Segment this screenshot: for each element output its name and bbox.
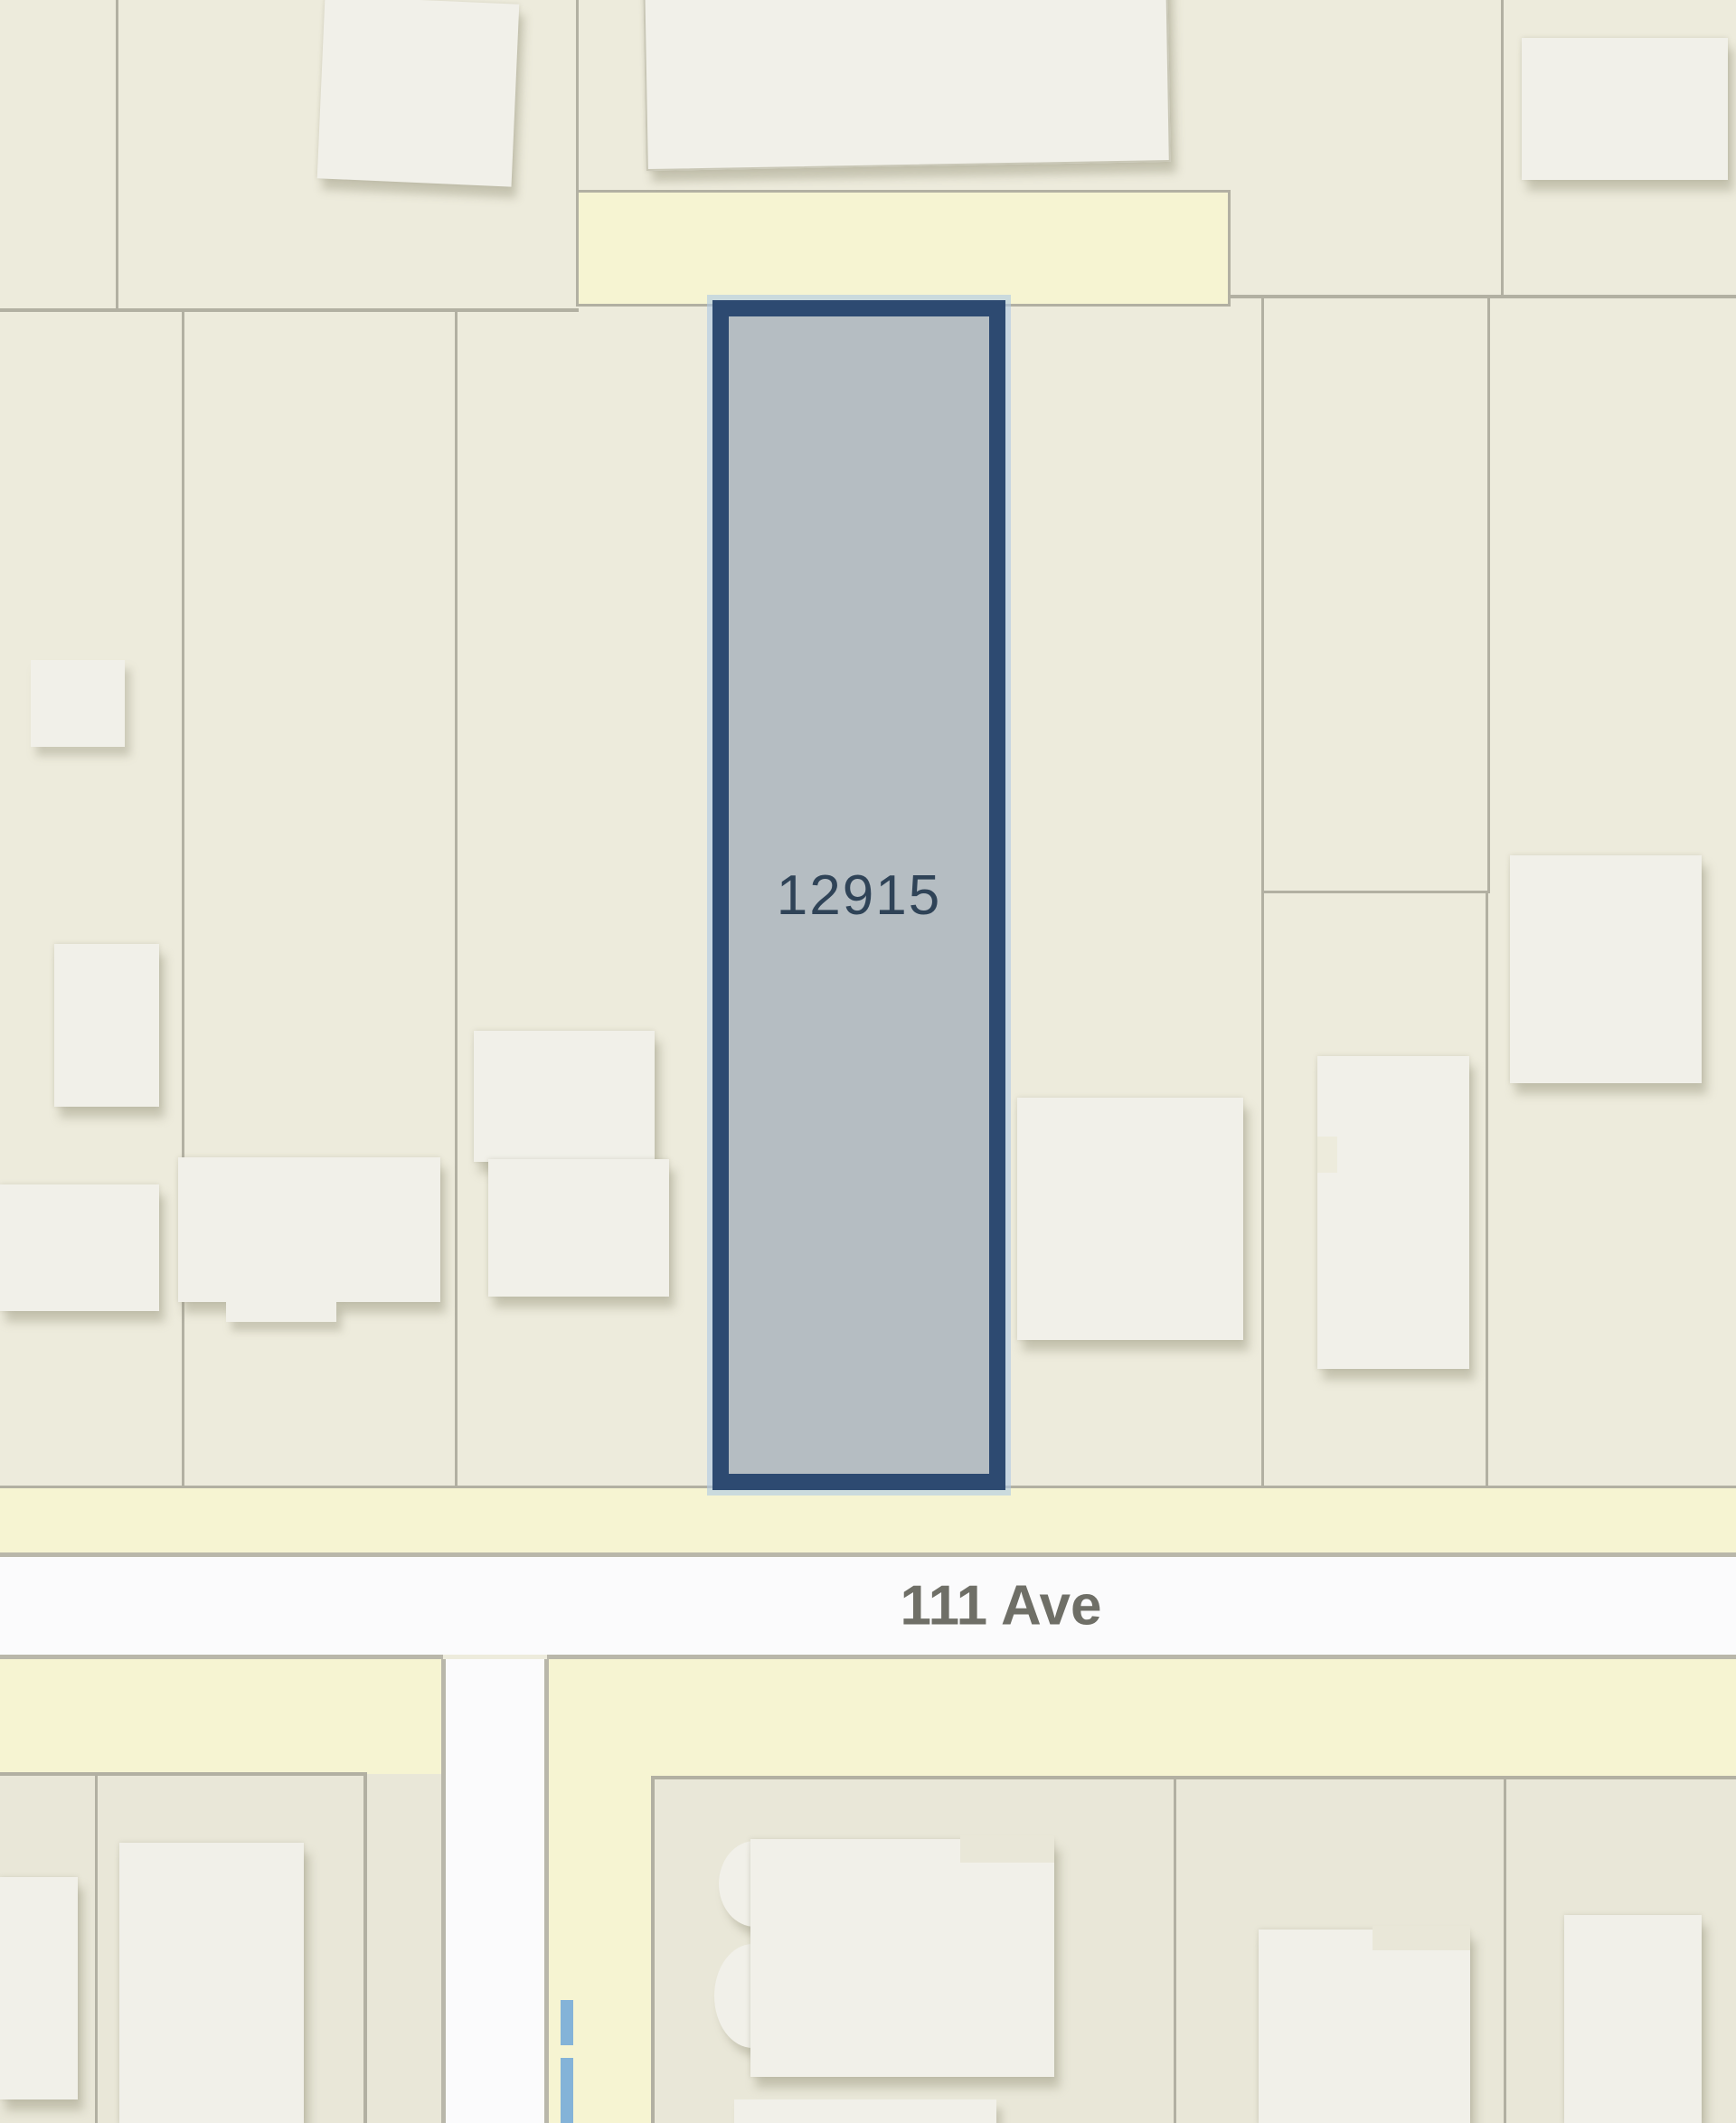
building-footprint <box>226 1300 336 1322</box>
side-road-pavement <box>446 1659 544 2123</box>
building-notch <box>960 1835 1054 1863</box>
building-footprint <box>474 1031 655 1162</box>
road-edge-line <box>0 1552 1736 1557</box>
road-111ave-pavement <box>0 1557 1736 1655</box>
road-allowance-band <box>549 1659 653 2123</box>
building-footprint <box>1017 1098 1243 1340</box>
building-footprint <box>643 0 1171 171</box>
road-edge-line <box>544 1659 549 2123</box>
map-canvas[interactable]: 12915 111 Ave <box>0 0 1736 2123</box>
building-footprint <box>0 1877 78 2099</box>
building-notch <box>1317 1137 1337 1173</box>
parcel-boundary-line <box>576 0 579 206</box>
block-edge-line <box>363 1772 367 2123</box>
road-allowance-band <box>653 1659 1736 1778</box>
parcel-boundary-line <box>1261 891 1490 893</box>
parcel-boundary-line <box>1487 297 1490 893</box>
parcel-boundary-line <box>1501 0 1504 297</box>
parcel-boundary-line <box>182 311 184 1488</box>
building-footprint <box>750 1839 1054 2077</box>
building-footprint <box>0 1184 159 1311</box>
block-top-boundary-line <box>0 1772 367 1776</box>
parcel-boundary-line <box>95 1774 98 2123</box>
road-allowance-band <box>0 1659 441 1774</box>
parcel-boundary-line <box>116 0 118 311</box>
road-edge-line <box>547 1655 1736 1659</box>
building-footprint <box>1317 1056 1469 1369</box>
parcel-boundary-line <box>1486 893 1488 1488</box>
rear-lane <box>576 190 1231 307</box>
road-edge-line <box>0 1655 443 1659</box>
building-footprint <box>119 1843 304 2123</box>
street-label: 111 Ave <box>901 1574 1102 1638</box>
building-footprint <box>54 944 159 1107</box>
block-edge-line <box>651 1776 655 2123</box>
building-footprint <box>178 1157 440 1302</box>
water-service-line <box>561 2000 573 2045</box>
road-edge-line <box>441 1659 446 2123</box>
parcel-boundary-line <box>1504 1778 1506 2123</box>
building-notch <box>1373 1926 1470 1950</box>
water-service-line <box>561 2058 573 2123</box>
road-allowance-band <box>0 1488 1736 1552</box>
building-footprint <box>1259 1930 1470 2123</box>
building-footprint <box>488 1159 669 1297</box>
parcel-label: 12915 <box>777 863 941 928</box>
parcel-boundary-line <box>455 311 458 1488</box>
building-footprint <box>1564 1915 1702 2123</box>
block-top-boundary-line <box>653 1776 1736 1779</box>
block-top-boundary-line <box>1228 295 1736 298</box>
building-footprint <box>317 0 520 187</box>
building-footprint <box>1510 855 1702 1083</box>
parcel-boundary-line <box>1174 1778 1176 2123</box>
building-footprint <box>31 660 125 747</box>
selected-parcel-12915[interactable]: 12915 <box>712 300 1005 1490</box>
building-footprint <box>1522 38 1728 180</box>
block-top-boundary-line <box>0 308 579 312</box>
building-footprint <box>734 2099 996 2123</box>
